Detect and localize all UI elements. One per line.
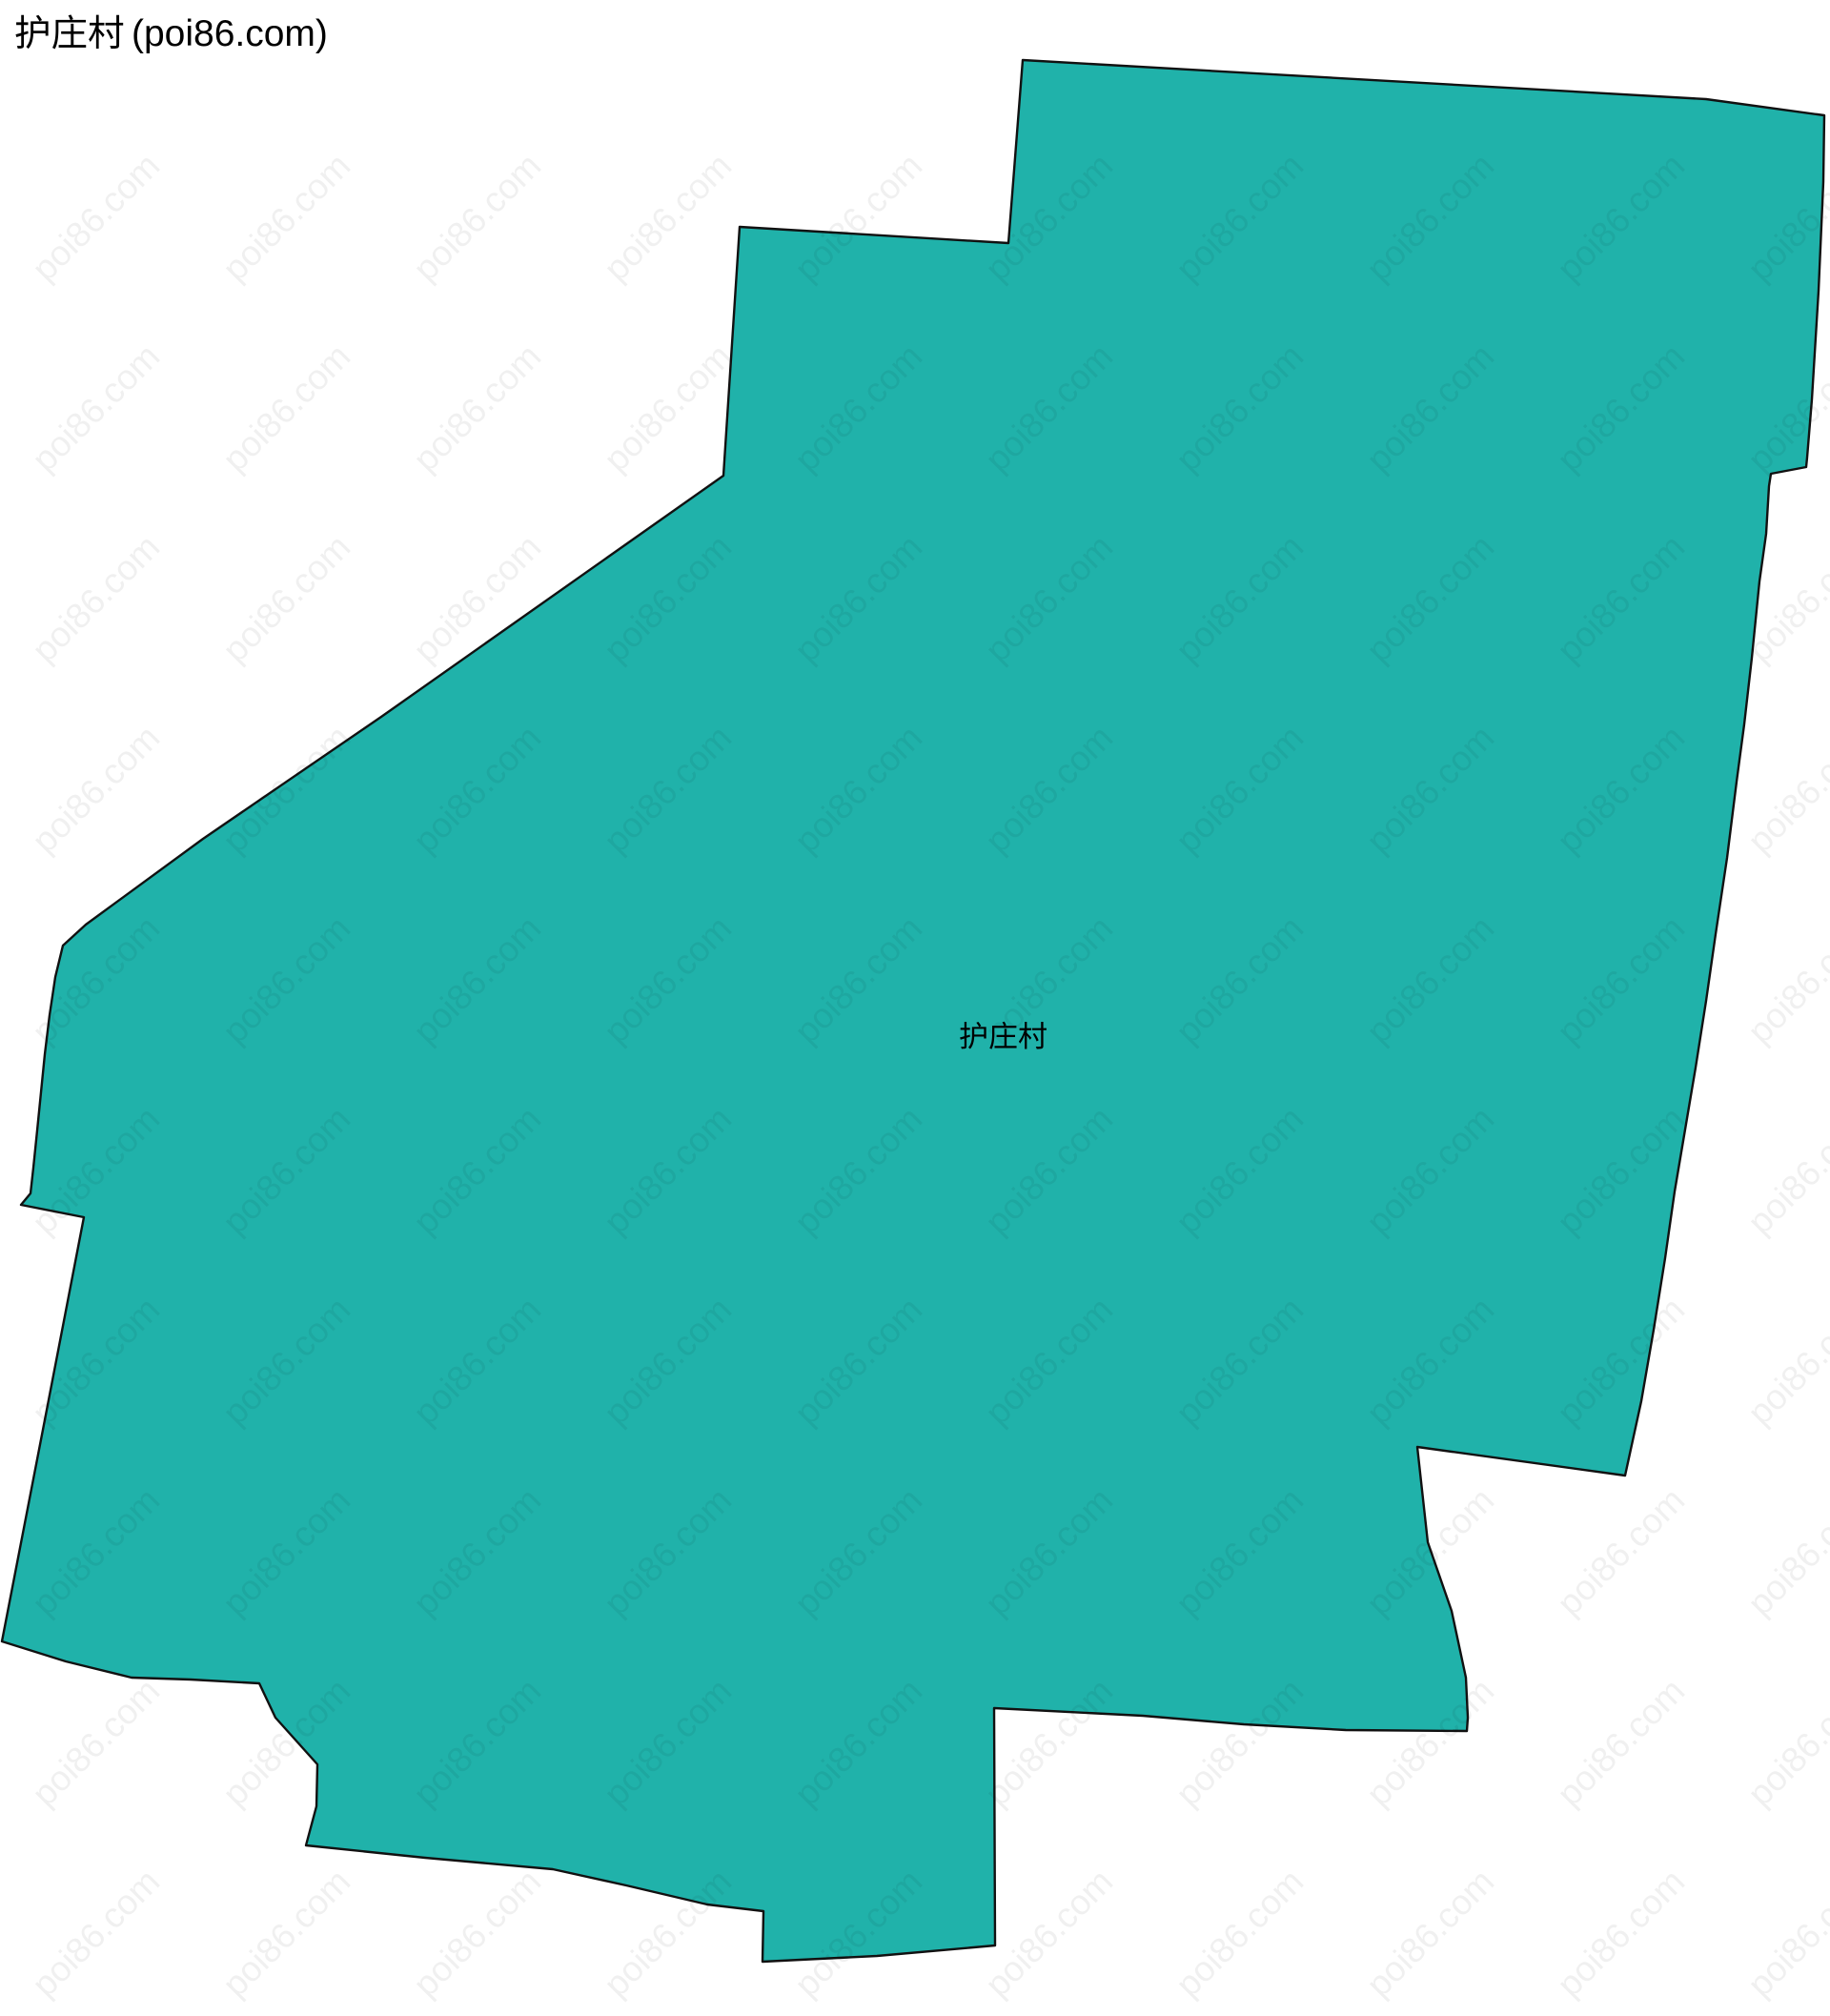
svg-text:(poi86.com): (poi86.com) [132,13,328,54]
